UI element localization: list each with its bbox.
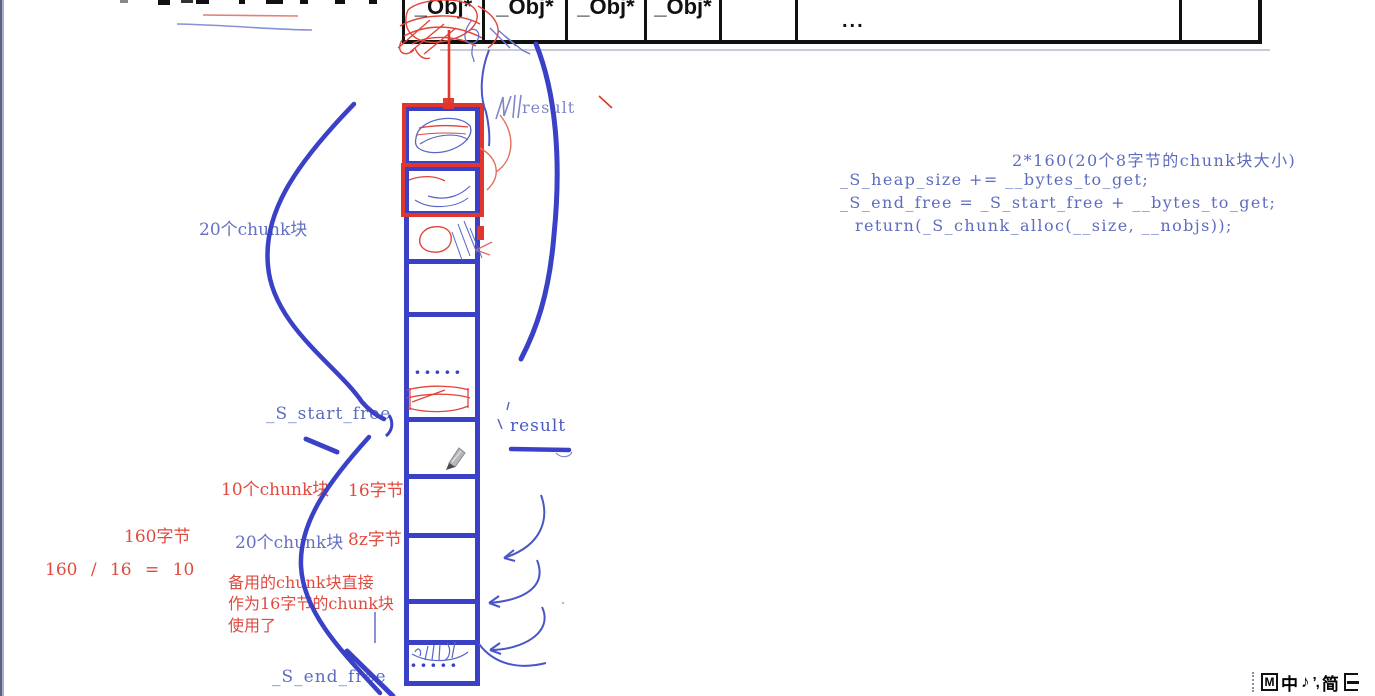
ime-toolbar: M 中 ♪ ’, 简: [1252, 668, 1375, 696]
tick-left-of-result: [498, 419, 502, 429]
chunk10-label: 10个chunk块: [221, 481, 329, 501]
red-highlight-frame-1: [402, 103, 484, 167]
cutoff-text-fragments: [120, 0, 377, 5]
table-cell-obj-1: _Obj*: [405, 0, 485, 40]
code-comment-bytes: 2*160(20个8字节的chunk块大小): [1012, 147, 1296, 171]
window-left-edge: [0, 0, 4, 696]
chunk-cell-4: [404, 259, 480, 317]
table-cell-ellipsis: ...: [798, 0, 1182, 40]
bytes8z-label: 8z字节: [348, 531, 402, 551]
chunk-cell-3: [404, 211, 480, 264]
ink-strokes-layer: [0, 0, 1375, 696]
note-line-3: 使用了: [228, 617, 276, 635]
ime-cutoff-icon[interactable]: [1344, 673, 1358, 691]
bytes16-label: 16字节: [348, 482, 404, 502]
table-shadow-line: [440, 49, 1270, 51]
result-pointer-label-top: result: [522, 99, 575, 117]
table-cell-obj-2: _Obj*: [485, 0, 568, 40]
bytes160-label: 160字节: [124, 528, 190, 548]
result-underline: [511, 449, 569, 450]
freelist-table: _Obj* _Obj* _Obj* _Obj* ...: [402, 0, 1262, 44]
red-underline-topleft: [203, 15, 298, 16]
calc-label: 160 / 16 = 10: [45, 561, 194, 581]
table-cell-empty-2: [1182, 0, 1262, 40]
blue-swoosh-curve: [521, 44, 557, 359]
stack-ellipsis-mid: ·····: [414, 362, 464, 382]
table-cell-obj-3: _Obj*: [568, 0, 647, 40]
stack-ellipsis-bottom: ·····: [410, 655, 460, 675]
right-hook-arrows: [479, 495, 546, 666]
note-line-2: 作为16字节的chunk块: [228, 595, 394, 613]
result-underline-hook: [556, 452, 572, 457]
ime-chinese-mode-indicator[interactable]: 中: [1281, 670, 1298, 695]
ime-punctuation-indicator[interactable]: ’,: [1313, 674, 1319, 691]
chunk-cell-6: [404, 417, 480, 479]
table-cell-obj-4: _Obj*: [647, 0, 722, 40]
s-start-free-label: _S_start_free: [266, 405, 391, 425]
code-return-line: return(_S_chunk_alloc(__size, __nobjs));: [855, 216, 1233, 235]
ime-logo-m[interactable]: M: [1261, 673, 1278, 691]
ime-drag-handle[interactable]: [1252, 672, 1257, 692]
chunk-cell-7: [404, 474, 480, 538]
chunk20-label-mid: 20个chunk块: [235, 534, 343, 554]
left-brace-lower: [301, 437, 380, 693]
red-tick-topright: [599, 96, 612, 108]
tick-before-result: [507, 402, 509, 410]
chunk-cell-8: [404, 533, 480, 604]
left-brace-upper: [267, 104, 384, 419]
result-scribble-mark: [496, 95, 521, 119]
chunk20-label-top: 20个chunk块: [199, 221, 307, 241]
note-line-1: 备用的chunk块直接: [228, 574, 374, 592]
ime-simplified-indicator[interactable]: 简: [1322, 670, 1339, 695]
code-heap-size-line: _S_heap_size += __bytes_to_get;: [840, 170, 1149, 189]
ime-sound-icon[interactable]: ♪: [1301, 672, 1310, 692]
red-highlight-frame-2: [401, 163, 484, 217]
code-end-free-line: _S_end_free = _S_start_free + __bytes_to…: [840, 193, 1276, 212]
s-end-free-label: _S_end_free: [272, 668, 387, 688]
chunk-cell-9: [404, 599, 480, 645]
stray-speck: [562, 602, 564, 604]
result-pointer-label-mid: result: [510, 417, 566, 437]
thick-dash-below-start-free: [306, 439, 337, 452]
blue-underline-topleft: [177, 24, 312, 30]
table-cell-empty-1: [722, 0, 798, 40]
